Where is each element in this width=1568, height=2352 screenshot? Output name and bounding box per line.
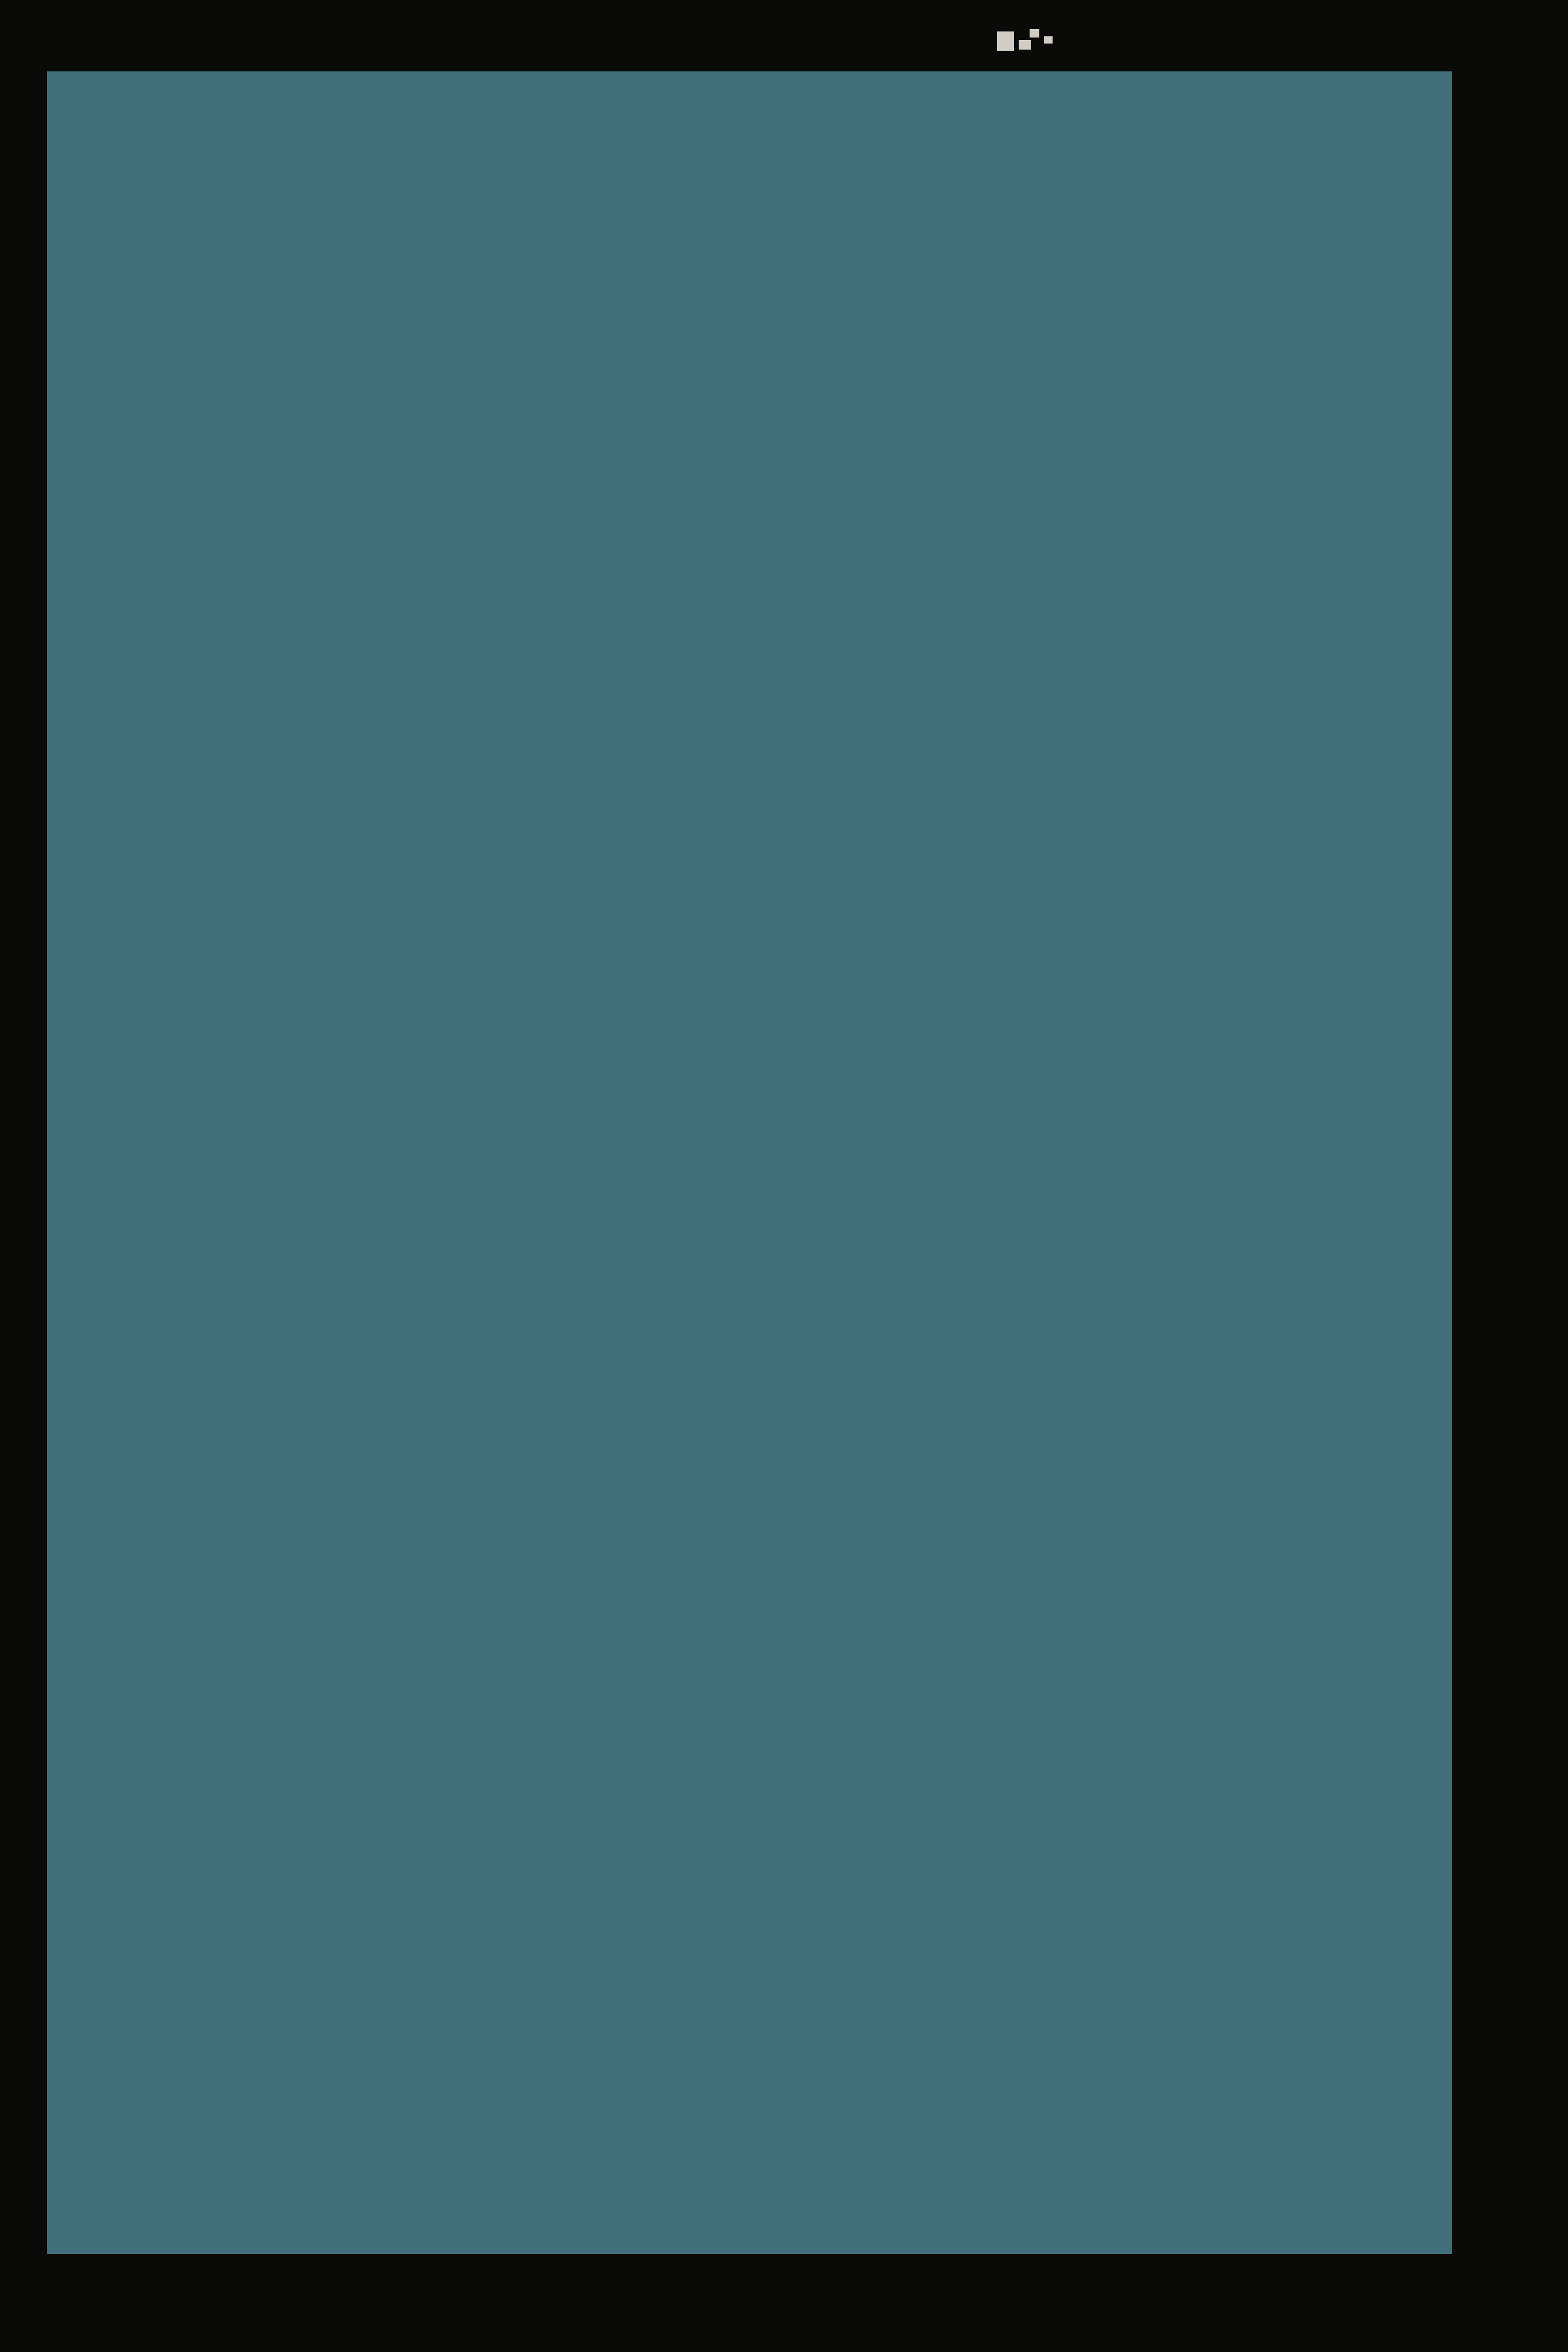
farm-building [1030, 29, 1039, 38]
farm-building [1044, 36, 1053, 44]
aerial-photo-slide [0, 0, 1568, 2352]
farm-building [997, 31, 1014, 51]
photo-base [47, 71, 1452, 2254]
farm-building [1019, 40, 1031, 50]
scene-svg [0, 0, 1568, 2352]
